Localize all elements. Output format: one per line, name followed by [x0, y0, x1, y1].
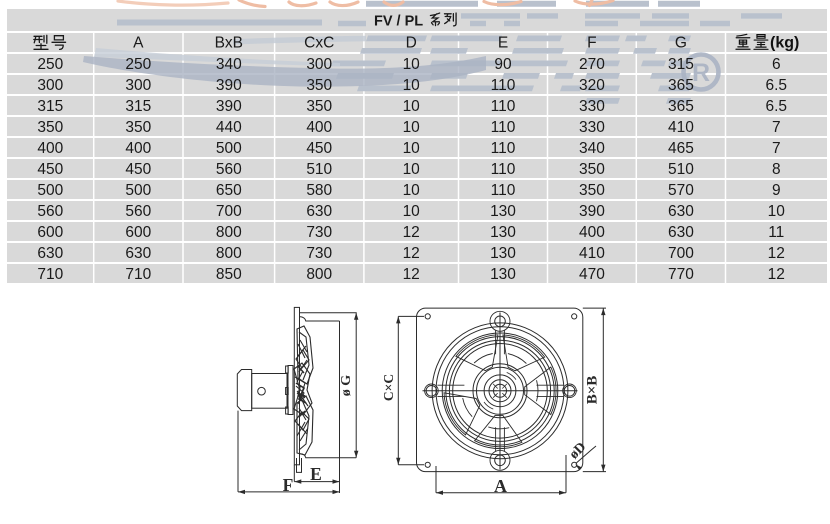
- svg-text:130: 130: [490, 245, 516, 262]
- svg-text:7: 7: [772, 119, 781, 136]
- svg-text:350: 350: [125, 119, 151, 136]
- svg-text:270: 270: [579, 56, 605, 73]
- svg-text:CxC: CxC: [304, 35, 334, 52]
- svg-text:10: 10: [403, 161, 421, 178]
- svg-text:730: 730: [306, 245, 332, 262]
- svg-text:630: 630: [37, 245, 63, 262]
- svg-text:400: 400: [579, 224, 605, 241]
- svg-text:300: 300: [125, 77, 151, 94]
- svg-text:110: 110: [491, 77, 516, 94]
- svg-text:315: 315: [125, 98, 151, 115]
- svg-text:C×C: C×C: [381, 374, 396, 401]
- svg-text:570: 570: [668, 182, 694, 199]
- svg-text:110: 110: [491, 119, 516, 136]
- svg-text:350: 350: [306, 77, 332, 94]
- svg-text:7: 7: [772, 140, 781, 157]
- svg-text:410: 410: [668, 119, 694, 136]
- svg-text:340: 340: [579, 140, 605, 157]
- svg-text:12: 12: [768, 266, 785, 283]
- svg-text:130: 130: [490, 203, 516, 220]
- svg-text:315: 315: [668, 56, 694, 73]
- svg-text:390: 390: [216, 98, 242, 115]
- svg-text:110: 110: [491, 140, 516, 157]
- svg-text:300: 300: [306, 56, 332, 73]
- svg-text:600: 600: [125, 224, 151, 241]
- svg-text:250: 250: [125, 56, 151, 73]
- svg-text:110: 110: [491, 161, 516, 178]
- svg-text:850: 850: [216, 266, 242, 283]
- svg-text:400: 400: [37, 140, 63, 157]
- svg-text:410: 410: [579, 245, 605, 262]
- svg-text:FV / PL: FV / PL: [374, 14, 423, 30]
- svg-text:800: 800: [306, 266, 332, 283]
- svg-text:E: E: [498, 35, 508, 52]
- svg-text:11: 11: [768, 224, 784, 241]
- svg-text:350: 350: [579, 161, 605, 178]
- svg-text:320: 320: [579, 77, 605, 94]
- svg-text:10: 10: [403, 56, 421, 73]
- svg-text:630: 630: [668, 224, 694, 241]
- svg-text:350: 350: [37, 119, 63, 136]
- svg-text:A: A: [494, 476, 507, 496]
- svg-text:130: 130: [490, 266, 516, 283]
- svg-text:500: 500: [37, 182, 63, 199]
- svg-text:10: 10: [403, 98, 421, 115]
- svg-text:10: 10: [403, 140, 421, 157]
- svg-text:ø G: ø G: [339, 375, 354, 397]
- svg-text:340: 340: [216, 56, 242, 73]
- svg-text:500: 500: [125, 182, 151, 199]
- svg-text:800: 800: [216, 245, 242, 262]
- svg-text:F: F: [587, 35, 596, 52]
- svg-text:E: E: [310, 464, 322, 484]
- svg-text:450: 450: [125, 161, 151, 178]
- svg-text:90: 90: [494, 56, 512, 73]
- svg-text:630: 630: [306, 203, 332, 220]
- svg-text:12: 12: [768, 245, 785, 262]
- svg-text:6: 6: [772, 56, 781, 73]
- svg-text:6.5: 6.5: [765, 77, 787, 94]
- svg-text:400: 400: [125, 140, 151, 157]
- svg-text:700: 700: [216, 203, 242, 220]
- svg-text:10: 10: [403, 203, 421, 220]
- svg-text:465: 465: [668, 140, 694, 157]
- svg-text:300: 300: [37, 77, 63, 94]
- svg-text:10: 10: [768, 203, 786, 220]
- svg-text:D: D: [406, 35, 417, 52]
- svg-text:560: 560: [216, 161, 242, 178]
- svg-text:630: 630: [668, 203, 694, 220]
- svg-text:12: 12: [403, 224, 420, 241]
- svg-text:600: 600: [37, 224, 63, 241]
- svg-text:390: 390: [216, 77, 242, 94]
- svg-text:350: 350: [306, 98, 332, 115]
- svg-text:560: 560: [37, 203, 63, 220]
- svg-text:580: 580: [306, 182, 332, 199]
- svg-text:10: 10: [403, 119, 421, 136]
- svg-text:800: 800: [216, 224, 242, 241]
- svg-text:390: 390: [579, 203, 605, 220]
- svg-text:450: 450: [37, 161, 63, 178]
- svg-text:130: 130: [490, 224, 516, 241]
- svg-text:450: 450: [306, 140, 332, 157]
- svg-text:12: 12: [403, 245, 420, 262]
- svg-text:B×B: B×B: [585, 376, 601, 405]
- svg-text:630: 630: [125, 245, 151, 262]
- svg-text:6.5: 6.5: [765, 98, 787, 115]
- svg-text:110: 110: [491, 98, 516, 115]
- svg-text:(kg): (kg): [770, 35, 799, 52]
- svg-text:9: 9: [772, 182, 781, 199]
- svg-text:500: 500: [216, 140, 242, 157]
- svg-text:440: 440: [216, 119, 242, 136]
- svg-text:8: 8: [772, 161, 781, 178]
- svg-text:R: R: [692, 59, 710, 87]
- svg-text:110: 110: [491, 182, 516, 199]
- svg-text:710: 710: [37, 266, 63, 283]
- svg-text:365: 365: [668, 77, 694, 94]
- svg-text:330: 330: [579, 98, 605, 115]
- svg-text:A: A: [133, 35, 144, 52]
- svg-text:400: 400: [306, 119, 332, 136]
- svg-text:315: 315: [37, 98, 63, 115]
- svg-text:250: 250: [37, 56, 63, 73]
- svg-text:10: 10: [403, 182, 421, 199]
- svg-text:510: 510: [668, 161, 694, 178]
- svg-text:650: 650: [216, 182, 242, 199]
- svg-text:12: 12: [403, 266, 420, 283]
- svg-text:350: 350: [579, 182, 605, 199]
- svg-text:BxB: BxB: [215, 35, 243, 52]
- svg-text:730: 730: [306, 224, 332, 241]
- svg-text:510: 510: [306, 161, 332, 178]
- svg-text:560: 560: [125, 203, 151, 220]
- svg-text:365: 365: [668, 98, 694, 115]
- svg-text:330: 330: [579, 119, 605, 136]
- svg-text:770: 770: [668, 266, 694, 283]
- svg-text:700: 700: [668, 245, 694, 262]
- svg-text:710: 710: [125, 266, 151, 283]
- svg-text:G: G: [675, 35, 687, 52]
- svg-text:470: 470: [579, 266, 605, 283]
- svg-text:10: 10: [403, 77, 421, 94]
- svg-text:F: F: [283, 475, 294, 495]
